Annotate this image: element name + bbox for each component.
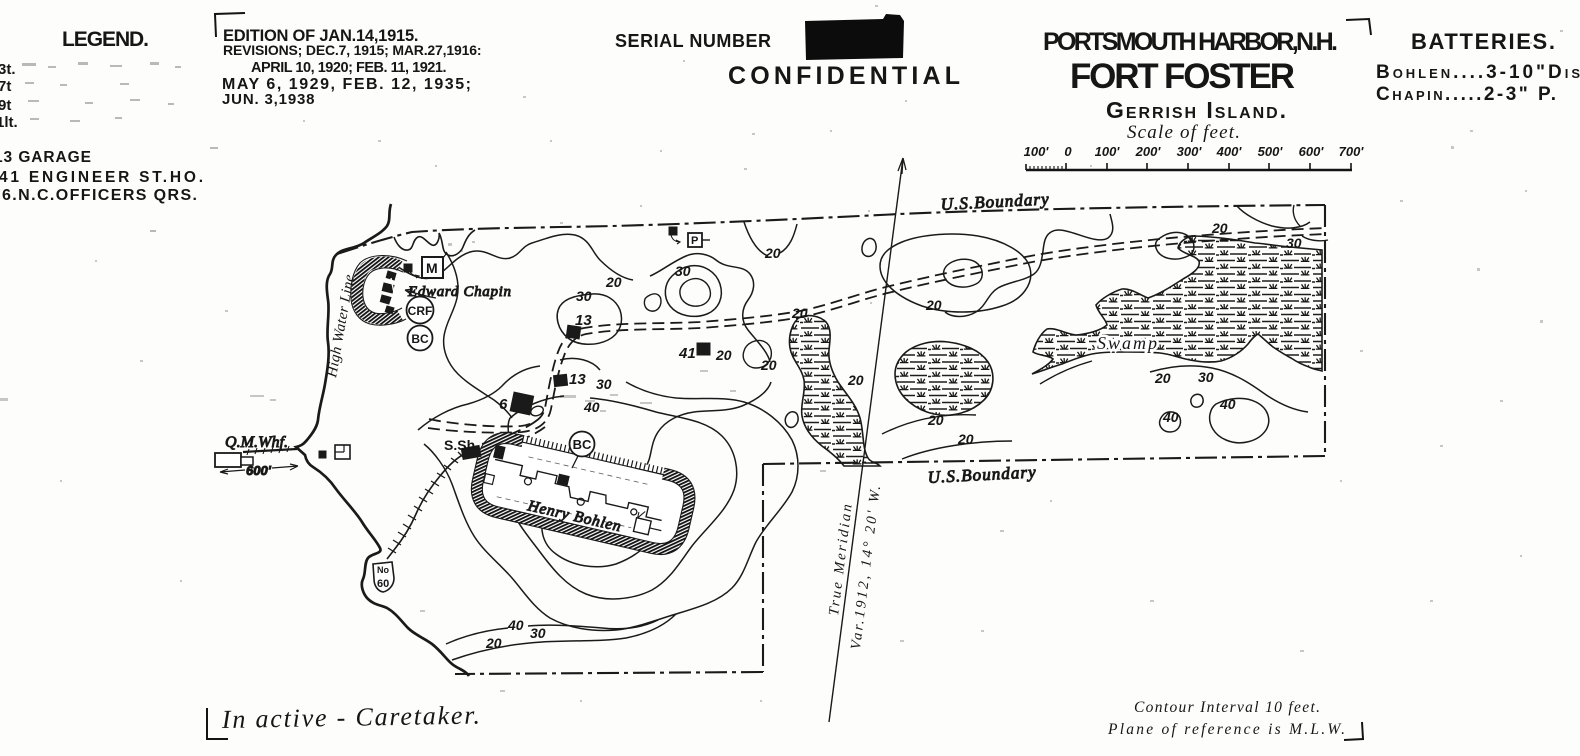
svg-text:No: No — [377, 565, 389, 575]
svg-text:1lt.: 1lt. — [0, 114, 18, 131]
svg-text:20: 20 — [715, 347, 732, 363]
svg-text:700': 700' — [1339, 144, 1365, 159]
svg-text:JUN. 3,1938: JUN. 3,1938 — [222, 91, 315, 108]
svg-text:20: 20 — [764, 245, 781, 261]
svg-text:30: 30 — [576, 288, 592, 304]
svg-text:20: 20 — [760, 357, 777, 373]
svg-text:400': 400' — [1216, 144, 1243, 159]
svg-text:7t: 7t — [0, 78, 11, 95]
svg-text:BC: BC — [411, 332, 429, 346]
svg-text:13: 13 — [569, 371, 586, 388]
svg-text:Bohlen....3-10"Dis: Bohlen....3-10"Dis — [1376, 62, 1580, 83]
svg-text:CONFIDENTIAL: CONFIDENTIAL — [728, 62, 967, 90]
svg-text:41: 41 — [678, 345, 696, 362]
svg-text:20: 20 — [605, 274, 622, 290]
svg-text:SERIAL NUMBER: SERIAL NUMBER — [615, 31, 775, 51]
svg-text:BC: BC — [573, 437, 592, 452]
svg-text:13: 13 — [575, 312, 592, 329]
svg-text:20: 20 — [847, 372, 864, 388]
svg-text:In active - Caretaker.: In active - Caretaker. — [221, 701, 480, 735]
svg-text:100': 100' — [1024, 144, 1050, 159]
svg-text:500': 500' — [1258, 144, 1284, 159]
svg-text:APRIL 10, 1920; FEB. 11, 1921.: APRIL 10, 1920; FEB. 11, 1921. — [251, 60, 447, 76]
svg-text:40: 40 — [1162, 409, 1179, 425]
svg-text:20: 20 — [1211, 220, 1228, 236]
svg-text:S.Sh.: S.Sh. — [444, 437, 479, 453]
svg-text:6.N.C.OFFICERS QRS.: 6.N.C.OFFICERS QRS. — [2, 187, 198, 204]
svg-text:30: 30 — [1286, 235, 1302, 251]
svg-text:LEGEND.: LEGEND. — [62, 28, 152, 51]
svg-text:40: 40 — [1219, 396, 1236, 412]
svg-text:REVISIONS; DEC.7, 1915; MAR.27: REVISIONS; DEC.7, 1915; MAR.27,1916: — [223, 42, 482, 58]
svg-text:20: 20 — [957, 431, 974, 447]
svg-text:Contour Interval 10 feet.: Contour Interval 10 feet. — [1134, 699, 1320, 716]
svg-text:FORT FOSTER: FORT FOSTER — [1070, 57, 1300, 96]
svg-text:CRF: CRF — [408, 304, 433, 318]
svg-text:PORTSMOUTH HARBOR,N.H.: PORTSMOUTH HARBOR,N.H. — [1043, 28, 1340, 56]
svg-text:9t: 9t — [0, 97, 11, 114]
svg-text:P: P — [691, 235, 698, 247]
svg-text:20: 20 — [791, 305, 808, 321]
svg-text:30: 30 — [675, 263, 691, 279]
svg-text:BATTERIES.: BATTERIES. — [1411, 29, 1557, 54]
svg-text:200': 200' — [1135, 144, 1162, 159]
svg-text:300': 300' — [1177, 144, 1203, 159]
svg-text:40: 40 — [507, 617, 524, 633]
svg-text:M: M — [426, 260, 438, 276]
svg-text:20: 20 — [925, 297, 942, 313]
svg-text:60: 60 — [377, 578, 389, 590]
svg-text:Gerrish Island.: Gerrish Island. — [1106, 97, 1286, 123]
svg-text:Scale of feet.: Scale of feet. — [1127, 122, 1240, 143]
svg-text:20: 20 — [927, 412, 944, 428]
svg-text:30: 30 — [596, 376, 612, 392]
svg-text:40: 40 — [583, 399, 600, 415]
svg-text:600': 600' — [1299, 144, 1325, 159]
svg-text:6: 6 — [499, 396, 508, 413]
svg-text:20: 20 — [1154, 370, 1171, 386]
svg-text:30: 30 — [530, 625, 546, 641]
svg-text:13 GARAGE: 13 GARAGE — [0, 149, 92, 166]
svg-text:0: 0 — [1064, 144, 1072, 159]
svg-text:20: 20 — [485, 635, 502, 651]
svg-text:100': 100' — [1095, 144, 1121, 159]
svg-text:3t.: 3t. — [0, 61, 16, 78]
svg-text:600': 600' — [246, 463, 272, 478]
svg-text:30: 30 — [1198, 369, 1214, 385]
svg-text:41 ENGINEER ST.HO.: 41 ENGINEER ST.HO. — [0, 169, 204, 186]
